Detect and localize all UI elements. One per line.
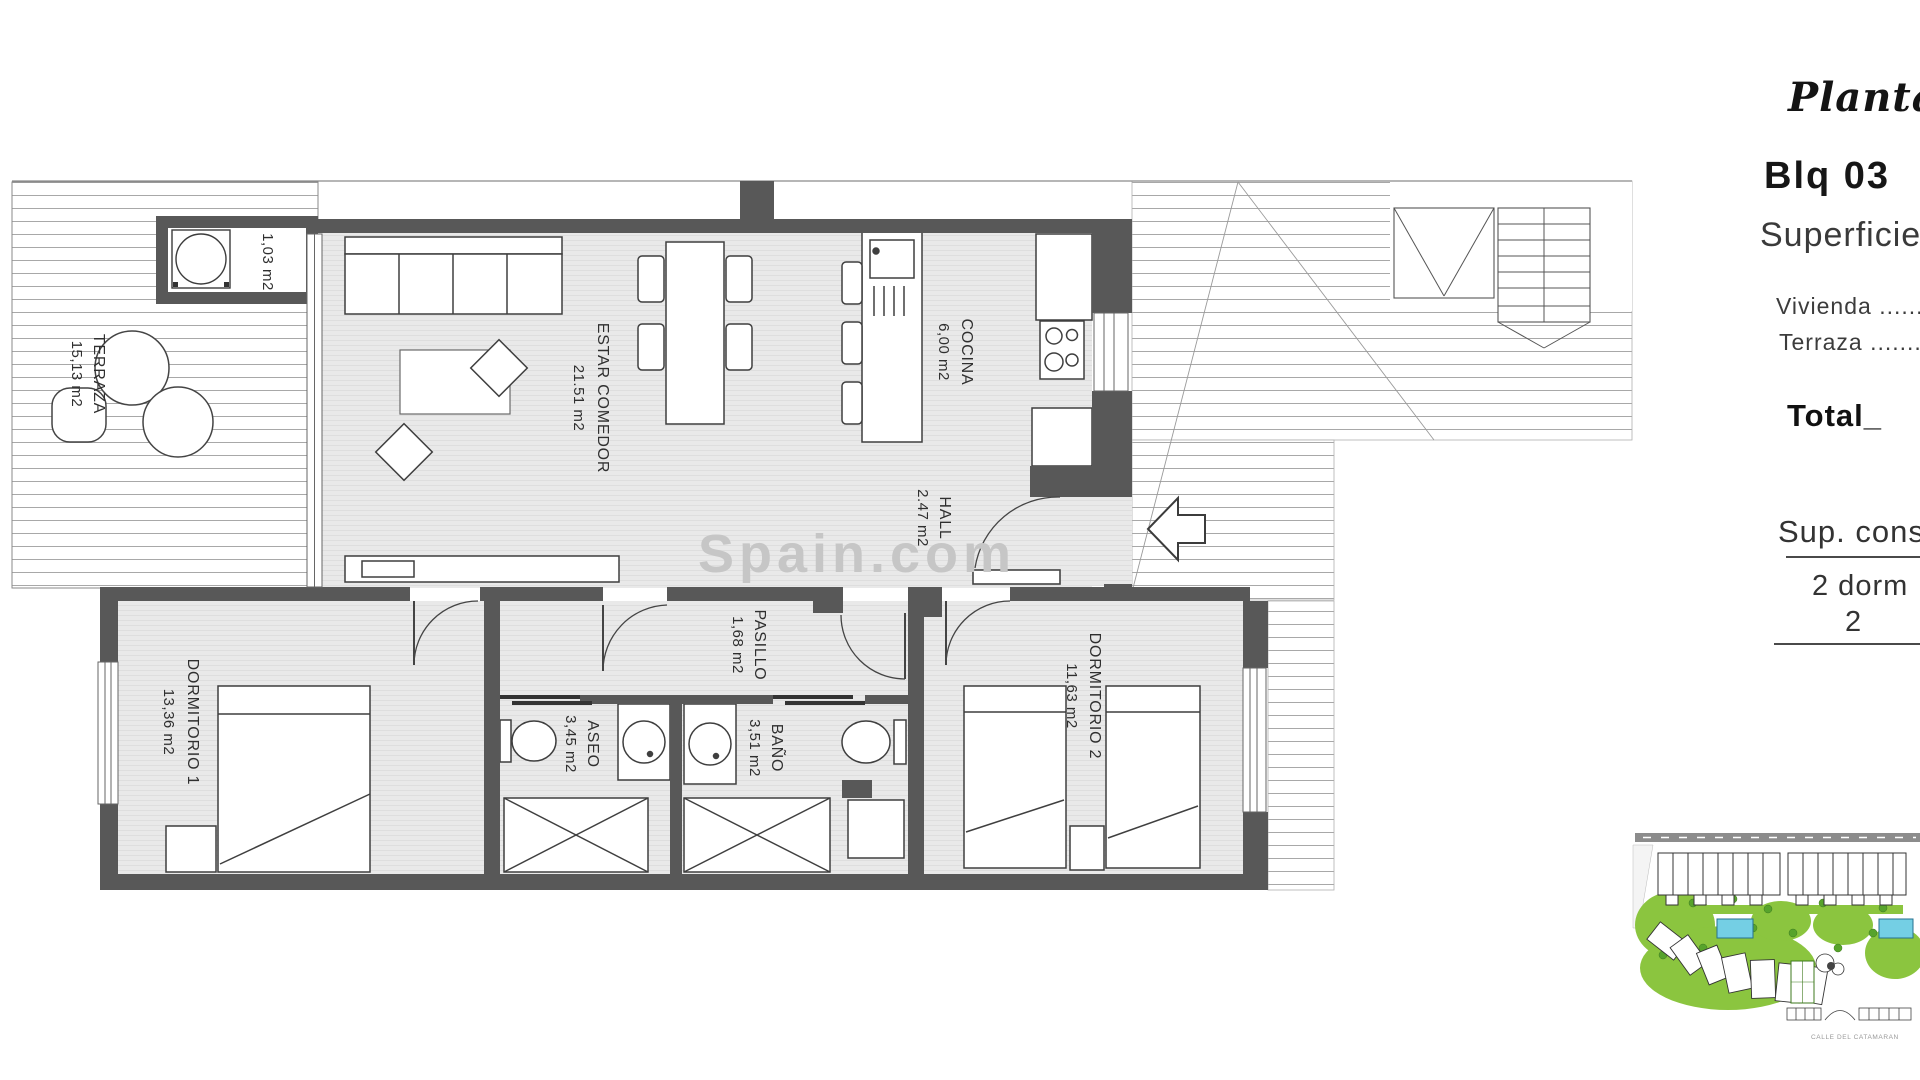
vivienda-row: Vivienda ..........	[1776, 293, 1920, 320]
surfaces-heading: Superficie	[1760, 216, 1920, 255]
floor-plan: TERRAZA 15,13 m2 1,03 m2 ESTAR COMEDOR 2…	[0, 0, 1920, 1080]
toilet	[512, 721, 556, 761]
sofa	[345, 237, 562, 314]
plan-title: Planta T	[1788, 74, 1920, 121]
label-bano: BAÑO	[768, 724, 788, 773]
window-kitchen	[1094, 313, 1128, 391]
nightstand-2	[1070, 826, 1104, 870]
sup-cons-heading: Sup. cons	[1778, 514, 1920, 550]
terraza-row: Terraza ............	[1779, 329, 1920, 356]
kitchen-counters	[1032, 234, 1092, 466]
window-dorm2	[1243, 668, 1266, 812]
label-dorm2: DORMITORIO 2	[1086, 633, 1103, 760]
window-dorm1	[98, 662, 118, 804]
label-estar-area: 21.51 m2	[570, 365, 587, 432]
dorm-row-2: 2	[1845, 606, 1862, 639]
site-tennis-court	[1791, 961, 1814, 1003]
toilet	[842, 721, 890, 763]
stool	[842, 262, 862, 304]
total-label: Total_	[1787, 398, 1882, 433]
watermark: Spain.com	[698, 524, 1016, 584]
toilet-tank	[894, 720, 906, 764]
bed-1	[218, 686, 370, 872]
kitchen-island	[842, 232, 922, 442]
sink	[870, 240, 914, 278]
bed-2a	[964, 686, 1066, 868]
label-dorm1-area: 13,36 m2	[160, 689, 177, 756]
site-plan: CALLE DEL CATAMARAN	[1633, 833, 1920, 1043]
dorm-row-1: 2 dorm	[1812, 570, 1908, 603]
stool	[842, 382, 862, 424]
label-pasillo: PASILLO	[751, 609, 768, 680]
block-title: Blq 03	[1764, 155, 1890, 198]
page: TERRAZA 15,13 m2 1,03 m2 ESTAR COMEDOR 2…	[0, 0, 1920, 1080]
label-cocina-area: 6,00 m2	[935, 323, 952, 381]
stool	[842, 322, 862, 364]
total-row: Total_9	[1787, 398, 1920, 434]
label-aseo: ASEO	[584, 720, 601, 768]
divider-top	[1786, 556, 1920, 558]
utility-room	[156, 216, 318, 304]
label-aseo-area: 3,45 m2	[562, 715, 579, 773]
toilet-tank	[500, 720, 511, 762]
label-terraza-area: 15,13 m2	[68, 341, 85, 408]
neighbor-roof	[1394, 208, 1494, 298]
label-lavadero-area: 1,03 m2	[259, 233, 276, 291]
dining-table	[666, 242, 724, 424]
label-terraza: TERRAZA	[90, 334, 107, 414]
label-dorm1: DORMITORIO 1	[184, 659, 201, 786]
label-dorm2-area: 11,63 m2	[1063, 663, 1080, 728]
label-pasillo-area: 1,68 m2	[729, 616, 746, 674]
label-estar: ESTAR COMEDOR	[594, 323, 611, 474]
site-street-label: CALLE DEL CATAMARAN	[1811, 1034, 1899, 1041]
divider-bottom	[1774, 643, 1920, 645]
bath-cabinet	[848, 800, 904, 858]
nightstand-1	[166, 826, 216, 872]
label-cocina: COCINA	[958, 318, 975, 385]
label-bano-area: 3,51 m2	[746, 719, 763, 777]
bed-2b	[1106, 686, 1200, 868]
stove	[1040, 321, 1084, 379]
terrace-table-2	[143, 387, 213, 457]
tv-unit	[345, 556, 619, 582]
